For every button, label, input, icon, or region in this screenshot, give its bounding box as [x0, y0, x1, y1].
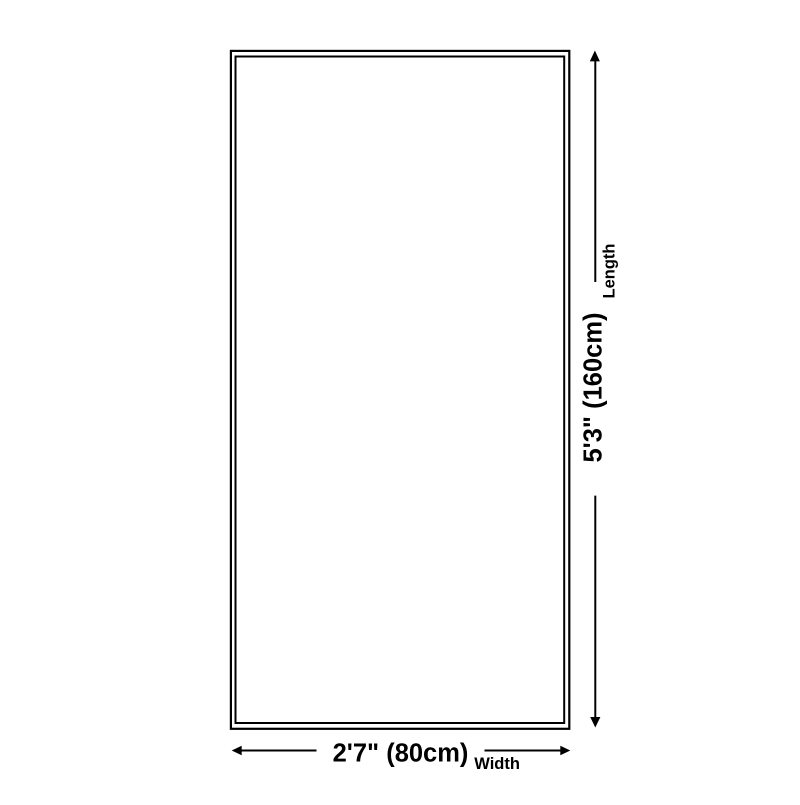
svg-text:5'3" (160cm): 5'3" (160cm) [580, 313, 608, 463]
svg-text:Length: Length [600, 244, 618, 299]
svg-text:2'7" (80cm): 2'7" (80cm) [333, 739, 469, 767]
svg-text:Width: Width [474, 755, 520, 773]
